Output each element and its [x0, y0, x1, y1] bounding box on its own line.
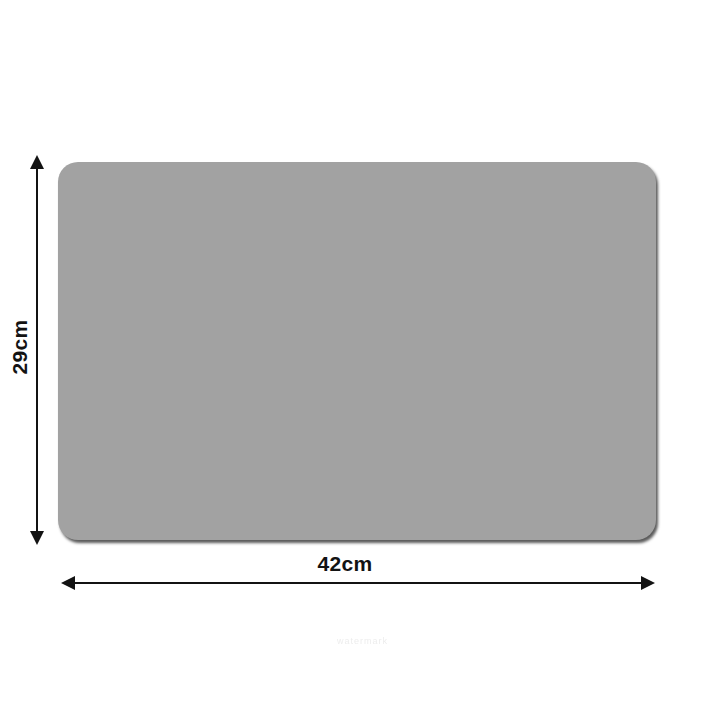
- placemat-image: [58, 162, 656, 540]
- width-dimension-line: [66, 582, 651, 584]
- watermark: watermark: [337, 636, 388, 646]
- arrow-right-icon: [641, 576, 655, 590]
- height-dimension-label: 29cm: [8, 320, 32, 375]
- height-dimension-line: [36, 167, 38, 535]
- arrow-down-icon: [30, 531, 44, 545]
- arrow-up-icon: [30, 155, 44, 169]
- product-dimension-diagram: 29cm 42cm watermark: [0, 0, 720, 720]
- arrow-left-icon: [61, 576, 75, 590]
- width-dimension-label: 42cm: [318, 552, 373, 576]
